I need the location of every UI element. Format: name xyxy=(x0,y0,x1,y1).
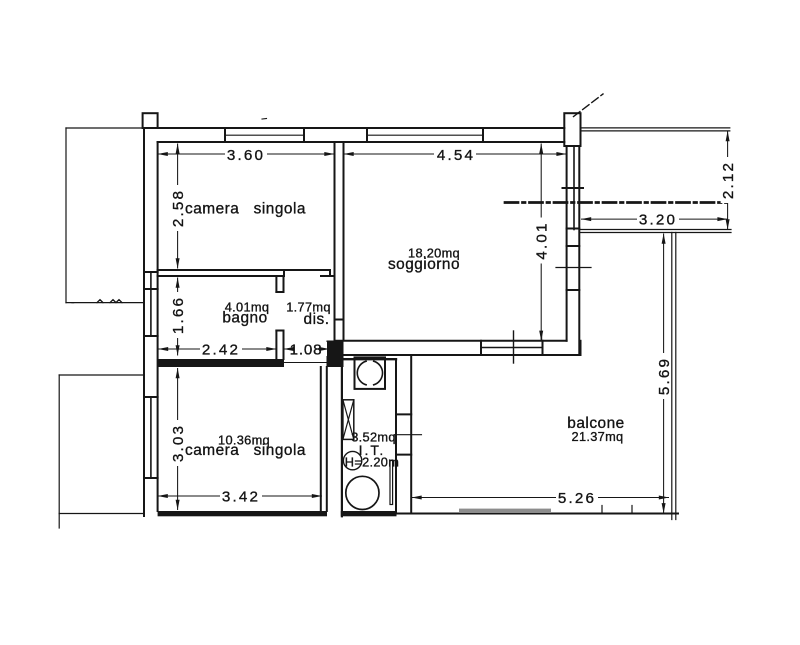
svg-text:2.42: 2.42 xyxy=(202,342,240,359)
svg-text:H=2.20m: H=2.20m xyxy=(345,455,399,470)
svg-text:5.26: 5.26 xyxy=(558,490,596,507)
svg-text:1.08: 1.08 xyxy=(290,342,323,359)
svg-text:soggiorno: soggiorno xyxy=(388,256,460,273)
svg-text:2.12: 2.12 xyxy=(720,161,737,199)
svg-text:3.42: 3.42 xyxy=(222,489,260,506)
svg-text:3.20: 3.20 xyxy=(639,212,677,229)
svg-text:dis.: dis. xyxy=(304,311,330,328)
svg-text:camera singola: camera singola xyxy=(185,201,306,218)
svg-text:5.69: 5.69 xyxy=(656,357,673,395)
svg-text:4.54: 4.54 xyxy=(437,147,475,164)
svg-text:bagno: bagno xyxy=(222,309,267,326)
svg-text:4.01: 4.01 xyxy=(534,221,551,259)
svg-text:camera singola: camera singola xyxy=(185,442,306,459)
svg-text:3.60: 3.60 xyxy=(227,147,265,164)
svg-text:21.37mq: 21.37mq xyxy=(572,429,624,444)
svg-text:1.66: 1.66 xyxy=(170,296,187,334)
